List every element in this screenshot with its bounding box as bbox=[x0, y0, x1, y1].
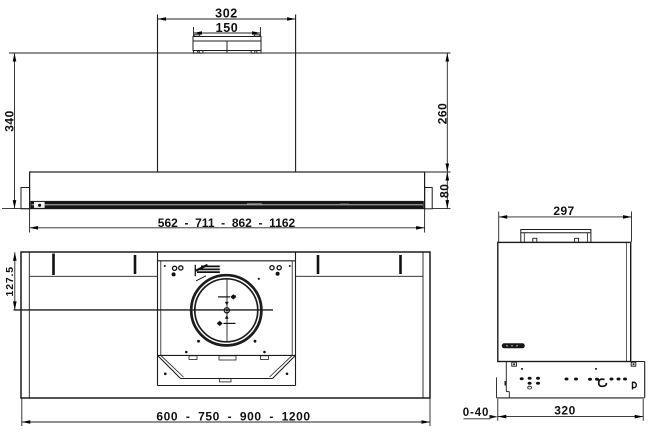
svg-text:150: 150 bbox=[216, 21, 239, 35]
svg-text:302: 302 bbox=[215, 7, 238, 21]
svg-text:260: 260 bbox=[436, 103, 450, 125]
svg-text:297: 297 bbox=[553, 204, 574, 218]
svg-text:127.5: 127.5 bbox=[4, 266, 16, 296]
svg-text:340: 340 bbox=[2, 110, 16, 132]
svg-text:0-40: 0-40 bbox=[463, 407, 490, 419]
svg-text:600 - 750 - 900 - 1200: 600 - 750 - 900 - 1200 bbox=[156, 410, 310, 424]
svg-text:562 - 711 - 862 - 1162: 562 - 711 - 862 - 1162 bbox=[158, 216, 296, 230]
svg-text:320: 320 bbox=[554, 403, 576, 417]
svg-text:80: 80 bbox=[437, 184, 451, 198]
